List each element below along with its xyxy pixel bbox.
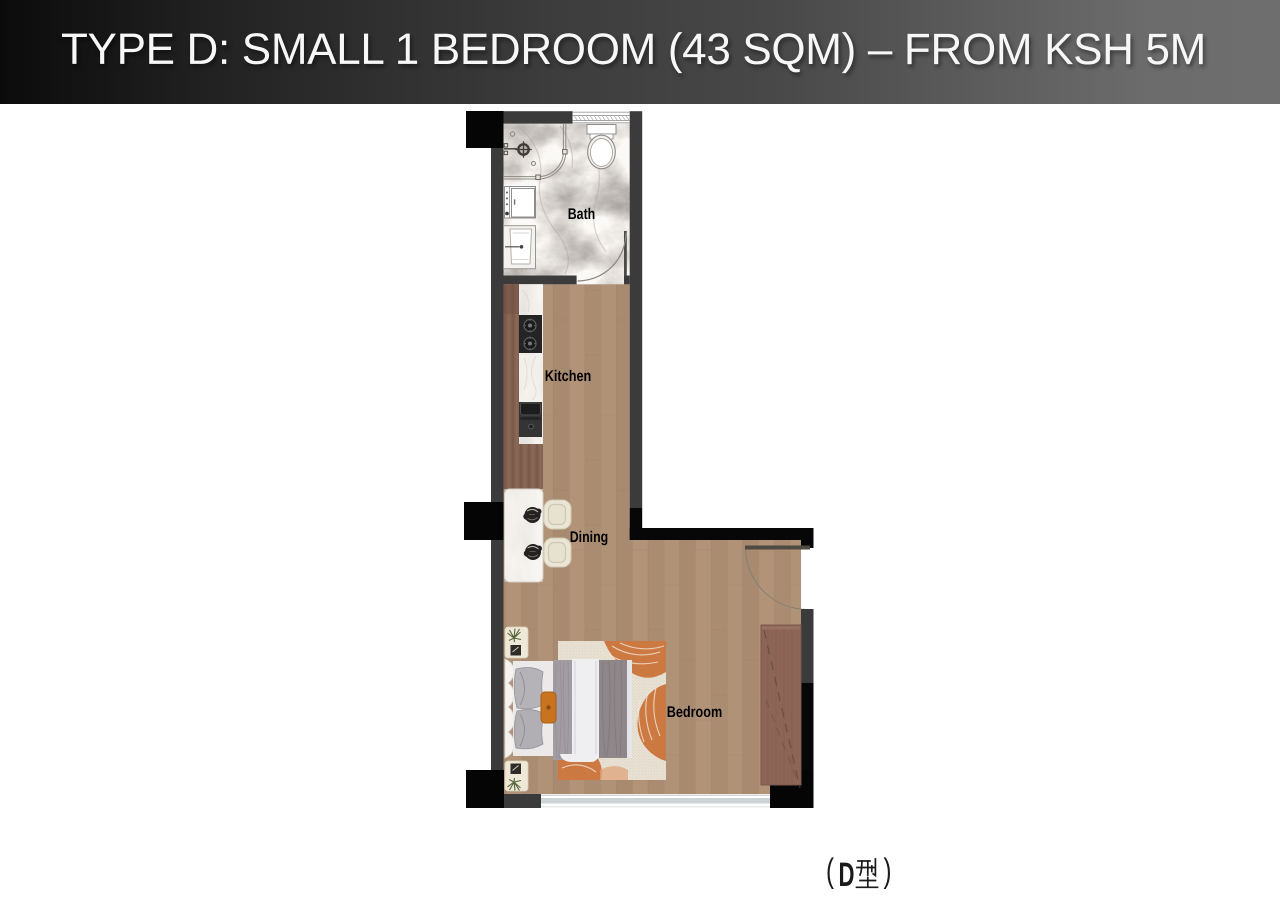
svg-text:Bath: Bath <box>568 206 596 223</box>
svg-text:Kitchen: Kitchen <box>545 368 592 385</box>
svg-text:D: D <box>838 856 854 894</box>
svg-text:(: ( <box>826 852 834 890</box>
svg-text:Dining: Dining <box>570 529 609 546</box>
svg-text:Bedroom: Bedroom <box>667 704 723 721</box>
svg-text:): ) <box>883 852 891 890</box>
